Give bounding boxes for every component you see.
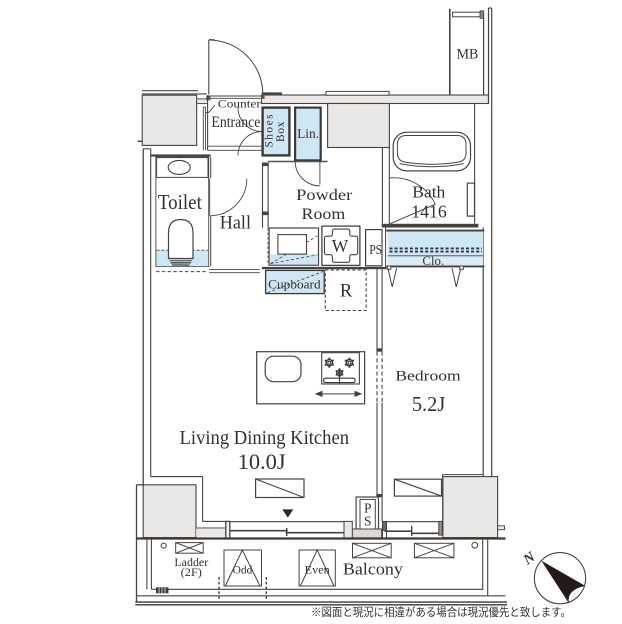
svg-text:Room: Room	[302, 206, 346, 223]
svg-text:(2F): (2F)	[181, 565, 202, 579]
svg-text:Even: Even	[305, 563, 330, 577]
svg-text:Powder: Powder	[296, 187, 352, 204]
svg-text:Toilet: Toilet	[158, 190, 202, 214]
svg-text:5.2J: 5.2J	[412, 392, 446, 416]
svg-text:1416: 1416	[411, 201, 447, 221]
svg-text:Lin.: Lin.	[297, 126, 319, 141]
svg-text:Bath: Bath	[412, 183, 446, 202]
svg-text:Counter: Counter	[218, 99, 261, 111]
svg-text:Shoes: Shoes	[264, 115, 276, 148]
svg-text:Balcony: Balcony	[343, 560, 403, 579]
svg-text:10.0J: 10.0J	[238, 449, 286, 474]
svg-text:R: R	[340, 282, 353, 302]
svg-text:Odd: Odd	[233, 563, 253, 577]
svg-text:Cupboard: Cupboard	[268, 277, 321, 291]
svg-text:Entrance: Entrance	[211, 114, 260, 131]
svg-text:PS: PS	[369, 243, 382, 258]
svg-text:Bedroom: Bedroom	[395, 368, 461, 384]
svg-text:Hall: Hall	[220, 214, 251, 234]
svg-text:※図面と現況に相違がある場合は現況優先と致します。: ※図面と現況に相違がある場合は現況優先と致します。	[311, 605, 571, 619]
svg-text:Box: Box	[275, 121, 287, 142]
svg-text:MB: MB	[457, 47, 479, 63]
svg-text:W: W	[332, 236, 349, 256]
svg-text:Living Dining Kitchen: Living Dining Kitchen	[180, 427, 350, 449]
svg-text:S: S	[364, 514, 372, 529]
